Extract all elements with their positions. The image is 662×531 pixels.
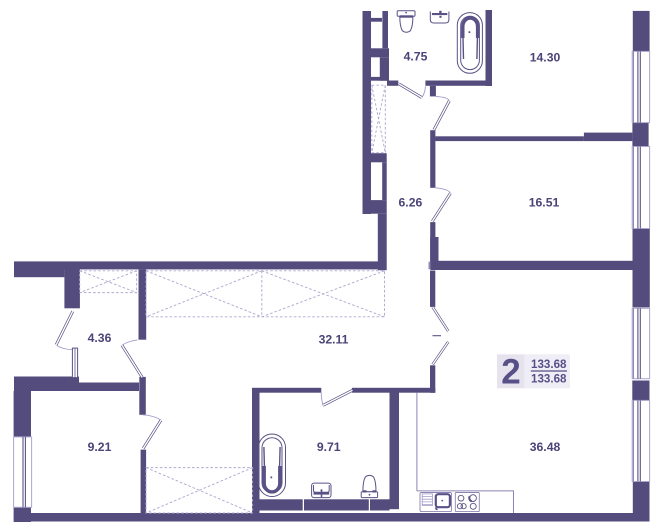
svg-text:2: 2: [501, 353, 520, 392]
svg-text:9.71: 9.71: [317, 440, 341, 454]
svg-text:4.36: 4.36: [88, 331, 112, 345]
svg-text:32.11: 32.11: [319, 332, 349, 346]
svg-text:36.48: 36.48: [530, 440, 561, 454]
svg-text:133.68: 133.68: [531, 358, 567, 371]
svg-text:133.68: 133.68: [531, 373, 567, 386]
svg-text:16.51: 16.51: [529, 196, 560, 210]
svg-text:6.26: 6.26: [399, 195, 423, 209]
svg-text:4.75: 4.75: [404, 50, 428, 64]
svg-text:9.21: 9.21: [88, 440, 112, 454]
svg-text:14.30: 14.30: [530, 51, 561, 65]
